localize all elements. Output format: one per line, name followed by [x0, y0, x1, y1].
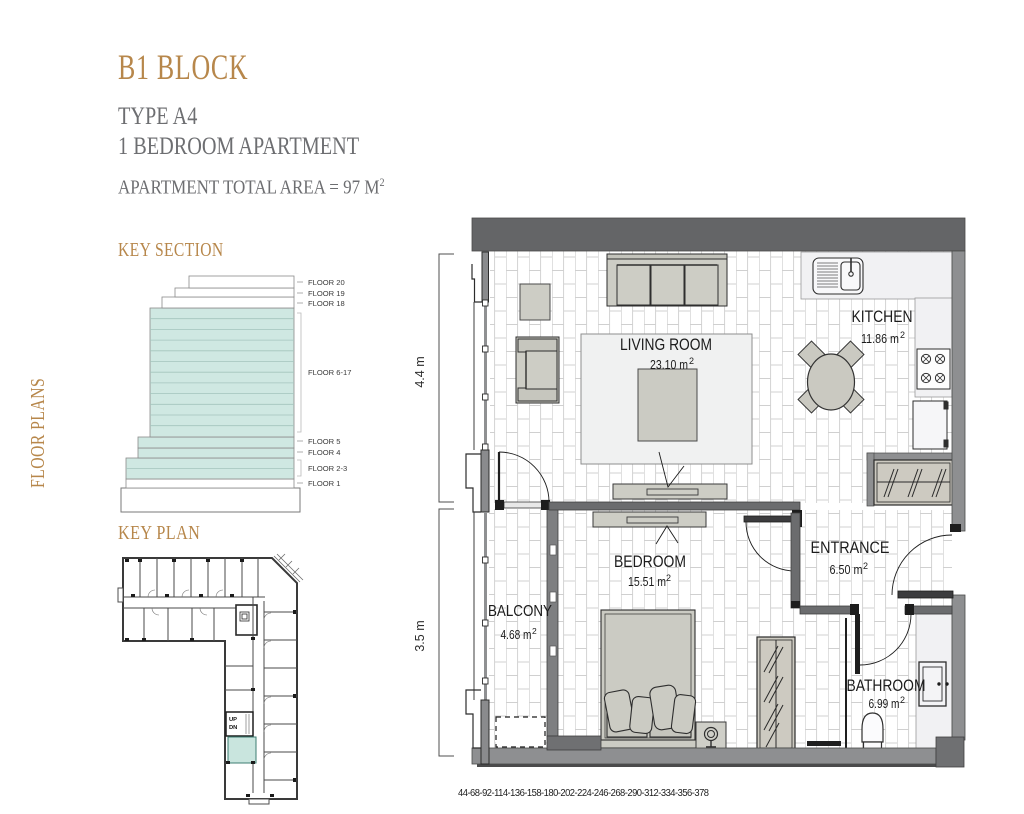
svg-text:2: 2 — [900, 330, 905, 340]
svg-text:LIVING ROOM: LIVING ROOM — [620, 335, 712, 354]
svg-text:FLOOR 6-17: FLOOR 6-17 — [308, 368, 351, 377]
svg-text:ENTRANCE: ENTRANCE — [811, 538, 890, 557]
svg-text:BALCONY: BALCONY — [488, 603, 552, 620]
svg-text:2: 2 — [689, 356, 694, 366]
svg-text:DN: DN — [229, 725, 237, 731]
svg-text:2: 2 — [900, 695, 905, 705]
svg-text:FLOOR 2-3: FLOOR 2-3 — [308, 464, 347, 473]
svg-text:11.86 m: 11.86 m — [861, 331, 899, 346]
svg-text:BATHROOM: BATHROOM — [847, 676, 926, 695]
svg-text:3.5 m: 3.5 m — [413, 620, 427, 651]
svg-text:FLOOR 18: FLOOR 18 — [308, 299, 345, 308]
svg-text:6.50 m: 6.50 m — [830, 562, 863, 577]
svg-text:15.51 m: 15.51 m — [628, 574, 666, 589]
svg-text:FLOOR 20: FLOOR 20 — [308, 278, 345, 287]
svg-text:6.99 m: 6.99 m — [869, 696, 900, 711]
svg-text:2: 2 — [532, 626, 537, 636]
svg-text:BEDROOM: BEDROOM — [614, 552, 686, 571]
svg-text:4.4 m: 4.4 m — [413, 356, 427, 387]
svg-text:4.68 m: 4.68 m — [501, 628, 532, 642]
svg-text:FLOOR 4: FLOOR 4 — [308, 448, 341, 457]
svg-text:2: 2 — [863, 561, 868, 571]
svg-text:2: 2 — [666, 573, 671, 583]
svg-text:KITCHEN: KITCHEN — [852, 307, 913, 326]
svg-text:FLOOR 5: FLOOR 5 — [308, 437, 341, 446]
svg-text:FLOOR 1: FLOOR 1 — [308, 479, 341, 488]
svg-text:23.10 m: 23.10 m — [650, 357, 688, 372]
svg-text:FLOOR 19: FLOOR 19 — [308, 289, 345, 298]
svg-text:UP: UP — [229, 717, 237, 723]
